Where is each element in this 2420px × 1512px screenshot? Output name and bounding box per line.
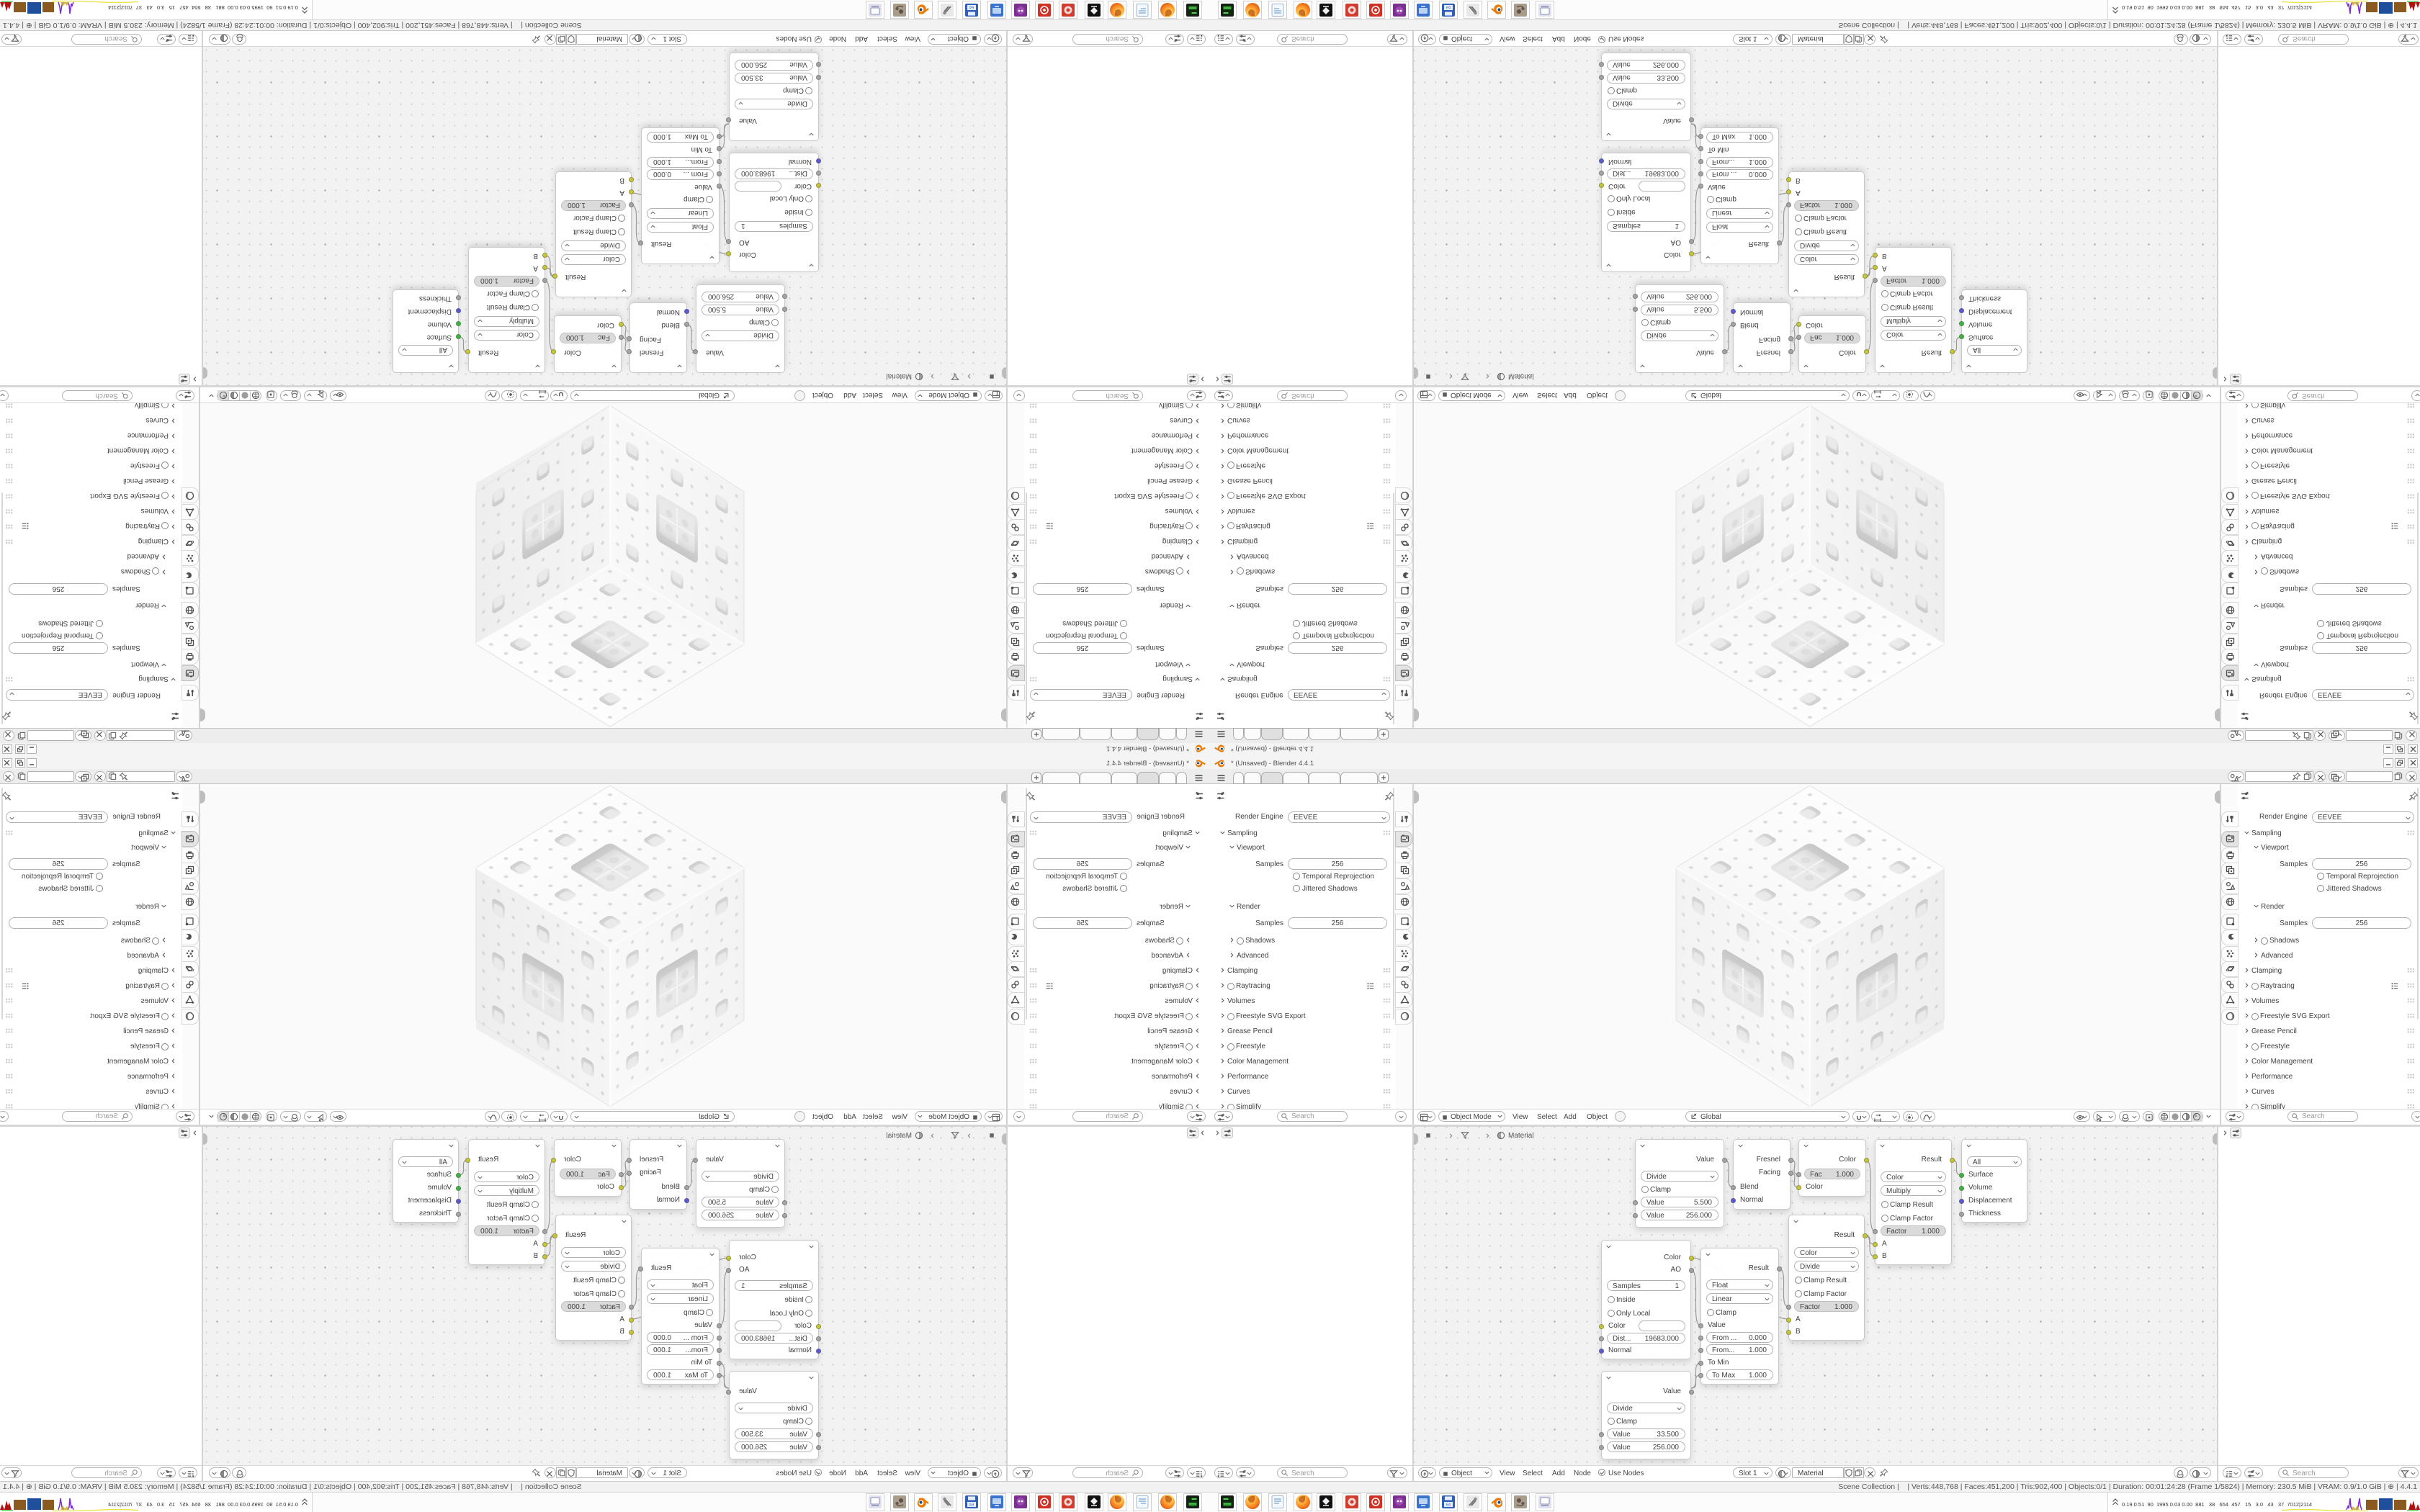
svg-text:64: 64 [1446,1503,1451,1508]
svg-text:64: 64 [969,1503,974,1508]
svg-text:64: 64 [1446,5,1451,9]
svg-text:64: 64 [969,5,974,9]
